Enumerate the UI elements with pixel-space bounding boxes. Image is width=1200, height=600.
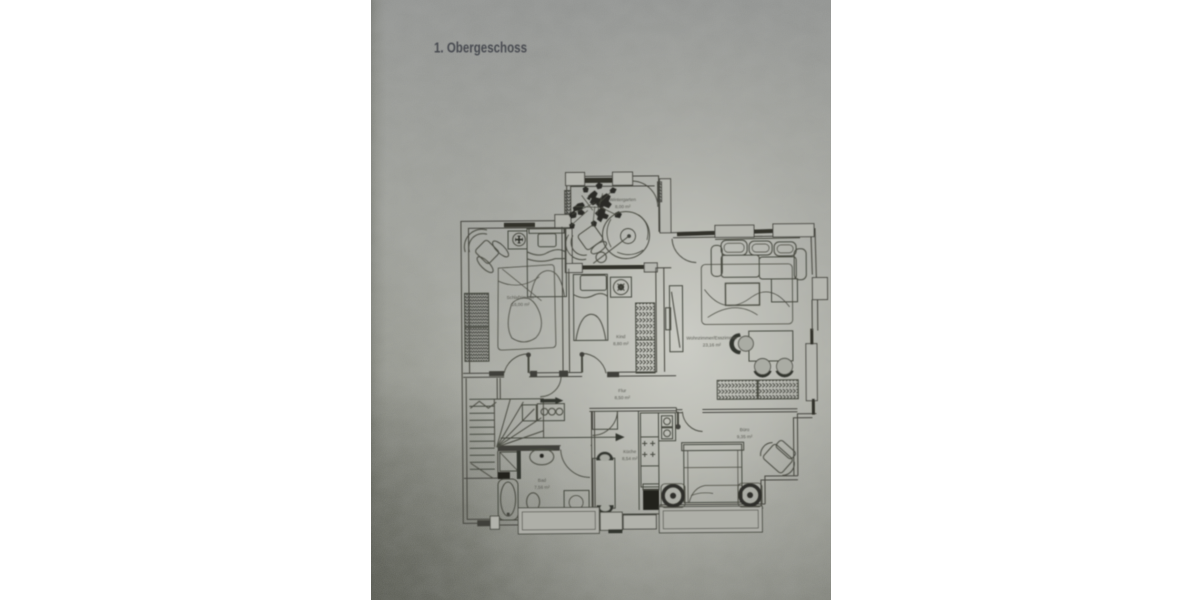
svg-text:8,54 m²: 8,54 m²	[622, 456, 638, 461]
svg-text:Kind: Kind	[616, 334, 626, 339]
svg-text:7,56 m²: 7,56 m²	[534, 485, 550, 490]
svg-text:16,00 m²: 16,00 m²	[511, 302, 530, 307]
svg-text:8,80 m²: 8,80 m²	[613, 341, 629, 346]
svg-text:Schlafzimmer: Schlafzimmer	[507, 295, 535, 300]
svg-text:9,35 m²: 9,35 m²	[737, 434, 753, 439]
svg-text:Küche: Küche	[623, 449, 637, 454]
svg-text:Bad: Bad	[538, 478, 547, 483]
svg-text:Büro: Büro	[740, 427, 750, 432]
svg-text:8,00 m²: 8,00 m²	[615, 204, 631, 209]
svg-text:Wohnzimmer/Esszimmer: Wohnzimmer/Esszimmer	[686, 335, 737, 340]
svg-text:1. Obergeschoss: 1. Obergeschoss	[434, 41, 527, 57]
svg-text:8,50 m²: 8,50 m²	[614, 395, 630, 400]
svg-text:Flur: Flur	[618, 388, 626, 393]
svg-text:Wintergarten: Wintergarten	[610, 197, 637, 202]
svg-text:23,16 m²: 23,16 m²	[703, 342, 722, 347]
